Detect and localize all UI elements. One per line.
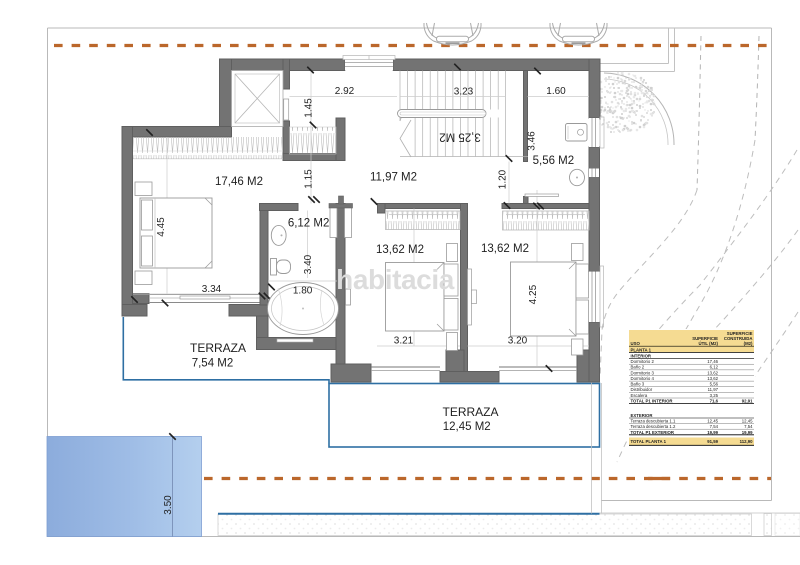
svg-text:USO: USO: [631, 341, 641, 346]
svg-text:19,99: 19,99: [707, 430, 718, 435]
svg-text:Dormitorio 2: Dormitorio 2: [631, 359, 655, 364]
svg-text:TERRAZA: TERRAZA: [190, 341, 246, 355]
svg-text:92,91: 92,91: [742, 398, 753, 403]
svg-text:Escalera: Escalera: [631, 393, 648, 398]
svg-text:3,25 M2: 3,25 M2: [439, 131, 481, 143]
svg-text:3.40: 3.40: [303, 254, 314, 274]
svg-text:TERRAZA: TERRAZA: [442, 405, 498, 419]
svg-text:3.23: 3.23: [454, 87, 474, 98]
svg-text:Distribuidor: Distribuidor: [631, 387, 653, 392]
svg-text:PLANTA 1: PLANTA 1: [631, 347, 652, 352]
svg-text:11,97: 11,97: [708, 387, 719, 392]
svg-text:5,56 M2: 5,56 M2: [533, 155, 575, 167]
svg-text:71,6: 71,6: [710, 398, 719, 403]
svg-text:19,99: 19,99: [742, 430, 753, 435]
svg-text:1.80: 1.80: [293, 286, 313, 297]
svg-text:1.45: 1.45: [304, 98, 315, 118]
svg-text:7,54: 7,54: [710, 424, 719, 429]
svg-text:4.45: 4.45: [156, 217, 167, 237]
svg-text:2.92: 2.92: [335, 86, 355, 97]
svg-text:INTERIOR: INTERIOR: [631, 354, 652, 359]
svg-text:112,90: 112,90: [740, 439, 754, 444]
svg-text:11,97 M2: 11,97 M2: [370, 172, 417, 184]
svg-text:(M2): (M2): [744, 341, 753, 346]
svg-text:EXTERIOR: EXTERIOR: [631, 413, 654, 418]
svg-text:Terraza descubierta 1.1: Terraza descubierta 1.1: [631, 419, 677, 424]
svg-text:6,12: 6,12: [710, 365, 719, 370]
svg-text:TOTAL P1 EXTERIOR: TOTAL P1 EXTERIOR: [631, 430, 675, 435]
svg-text:3.20: 3.20: [508, 336, 528, 347]
svg-text:7,54: 7,54: [744, 424, 753, 429]
svg-text:12,45 M2: 12,45 M2: [443, 421, 491, 433]
svg-text:12,45: 12,45: [742, 419, 753, 424]
svg-text:ÚTIL (M2): ÚTIL (M2): [699, 341, 719, 346]
svg-text:3.21: 3.21: [394, 336, 414, 347]
svg-text:3,25: 3,25: [710, 393, 719, 398]
svg-text:TOTAL P1 INTERIOR: TOTAL P1 INTERIOR: [631, 398, 674, 403]
svg-text:habitacia: habitacia: [336, 264, 455, 295]
svg-text:Terraza descubierta 1.2: Terraza descubierta 1.2: [631, 424, 677, 429]
svg-text:17,46: 17,46: [707, 359, 718, 364]
svg-text:Dormitorio 4: Dormitorio 4: [631, 376, 655, 381]
svg-text:91,59: 91,59: [707, 439, 718, 444]
svg-text:6,12 M2: 6,12 M2: [288, 218, 330, 230]
svg-text:3.50: 3.50: [163, 495, 174, 515]
svg-text:1.15: 1.15: [304, 169, 315, 189]
svg-text:1.20: 1.20: [498, 169, 509, 189]
svg-text:Baño 2: Baño 2: [631, 365, 645, 370]
svg-text:13,62: 13,62: [707, 376, 718, 381]
svg-text:5,56: 5,56: [710, 382, 719, 387]
svg-text:1.60: 1.60: [546, 86, 566, 97]
svg-text:13,62 M2: 13,62 M2: [376, 244, 424, 256]
svg-text:3.34: 3.34: [202, 284, 222, 295]
svg-text:3.46: 3.46: [527, 131, 538, 151]
svg-text:Dormitorio 3: Dormitorio 3: [631, 370, 655, 375]
svg-text:12,45: 12,45: [707, 419, 718, 424]
svg-text:17,46 M2: 17,46 M2: [215, 176, 263, 188]
svg-text:13,62 M2: 13,62 M2: [481, 243, 529, 255]
svg-text:13,62: 13,62: [707, 370, 718, 375]
svg-text:Baño 3: Baño 3: [631, 382, 645, 387]
svg-text:4.25: 4.25: [528, 284, 539, 304]
svg-text:7,54 M2: 7,54 M2: [192, 358, 234, 370]
svg-text:TOTAL PLANTA 1: TOTAL PLANTA 1: [631, 439, 667, 444]
